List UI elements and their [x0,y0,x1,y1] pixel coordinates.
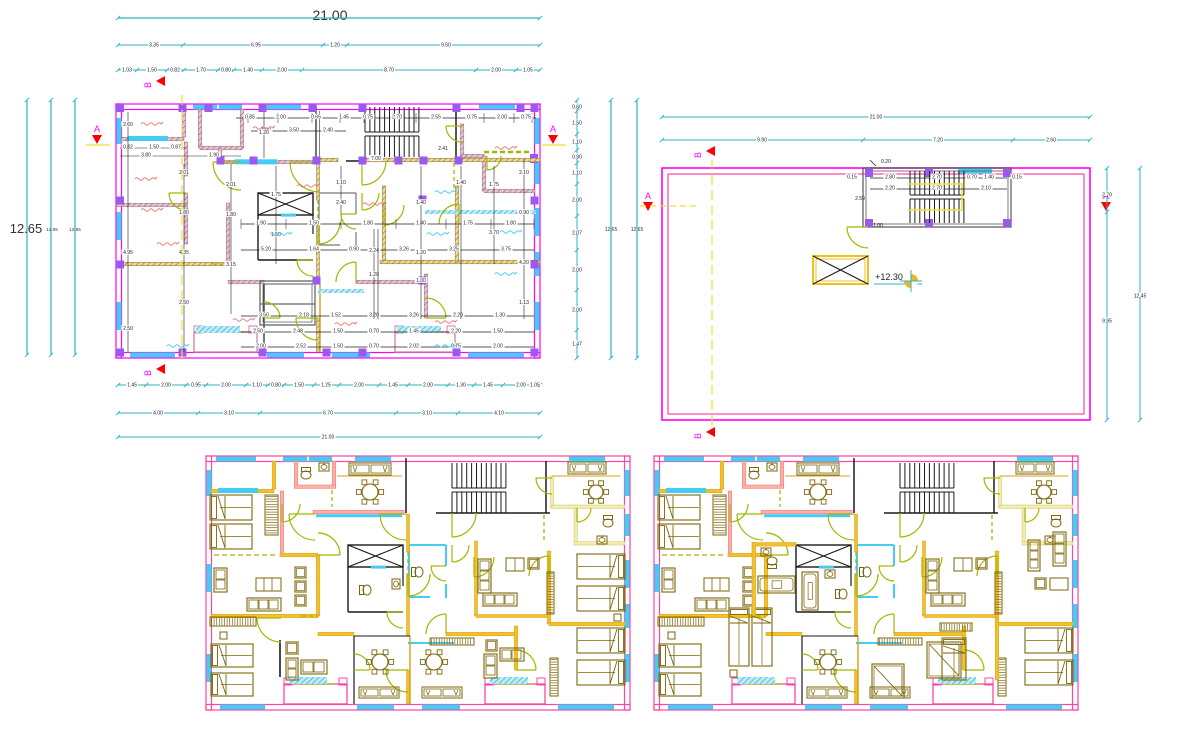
svg-text:4.10: 4.10 [494,411,504,417]
svg-text:1.40: 1.40 [984,174,994,180]
svg-text:1.40: 1.40 [456,180,466,186]
svg-text:2.20: 2.20 [453,312,463,318]
svg-text:0.60: 0.60 [572,105,582,111]
svg-text:1.10: 1.10 [252,383,262,389]
svg-text:0.70: 0.70 [967,174,977,180]
svg-text:6.95: 6.95 [251,43,261,49]
svg-text:1.64: 1.64 [309,246,319,252]
svg-text:1.80: 1.80 [506,220,516,226]
svg-text:2.07: 2.07 [572,231,582,237]
svg-text:2.70: 2.70 [932,185,942,191]
svg-text:1.80: 1.80 [179,210,189,216]
svg-text:2.60: 2.60 [123,122,133,128]
svg-text:3.10: 3.10 [422,411,432,417]
svg-text:0.15: 0.15 [1012,174,1022,180]
svg-text:1.00: 1.00 [416,278,426,284]
svg-text:B: B [143,370,153,376]
svg-text:1.50: 1.50 [294,383,304,389]
svg-text:1.05: 1.05 [523,68,533,74]
svg-text:2.41: 2.41 [438,146,448,152]
svg-text:2.40: 2.40 [336,200,346,206]
svg-text:3.15: 3.15 [226,262,236,268]
svg-text:2.70: 2.70 [392,114,402,120]
svg-text:1.13: 1.13 [519,300,529,306]
svg-text:4.00: 4.00 [153,411,163,417]
svg-text:0.75: 0.75 [467,114,477,120]
svg-text:1.40: 1.40 [416,200,426,206]
svg-text:0.70: 0.70 [369,343,379,349]
svg-text:A: A [550,124,556,134]
svg-text:2.00: 2.00 [161,383,171,389]
svg-text:2.40: 2.40 [323,127,333,133]
svg-text:1.47: 1.47 [572,342,582,348]
svg-text:8.70: 8.70 [384,68,394,74]
svg-text:A: A [94,124,100,134]
svg-text:2.10: 2.10 [981,185,991,191]
svg-text:3.70: 3.70 [489,230,499,236]
svg-text:1.75: 1.75 [271,192,281,198]
svg-text:1.30: 1.30 [456,383,466,389]
svg-text:2.80: 2.80 [885,174,895,180]
svg-text:2.50: 2.50 [123,326,133,332]
svg-text:2.60: 2.60 [1046,138,1056,144]
svg-text:2.20: 2.20 [885,185,895,191]
svg-text:1.20: 1.20 [330,43,340,49]
svg-text:2.01: 2.01 [226,182,236,188]
svg-text:2.52: 2.52 [296,343,306,349]
svg-text:2.00: 2.00 [497,114,507,120]
svg-text:12.65: 12.65 [46,227,58,232]
svg-text:12.65: 12.65 [10,221,43,236]
svg-text:3.10: 3.10 [224,411,234,417]
svg-text:1.50: 1.50 [147,68,157,74]
svg-text:0.15: 0.15 [847,174,857,180]
svg-text:1.20: 1.20 [416,250,426,256]
svg-text:1.80: 1.80 [226,212,236,218]
svg-text:2.00: 2.00 [493,343,503,349]
svg-text:12.65: 12.65 [631,227,644,233]
svg-text:2.00: 2.00 [256,343,266,349]
svg-text:B: B [693,433,703,439]
svg-text:0.75: 0.75 [521,114,531,120]
svg-text:3.35: 3.35 [149,43,159,49]
svg-text:0.75: 0.75 [363,114,373,120]
svg-text:2.00: 2.00 [572,308,582,314]
svg-text:1.52: 1.52 [331,312,341,318]
svg-text:0.90: 0.90 [519,210,529,216]
svg-text:0.65: 0.65 [311,114,321,120]
svg-text:1.75: 1.75 [489,182,499,188]
svg-text:2.10: 2.10 [519,170,529,176]
svg-text:2.00: 2.00 [221,383,231,389]
svg-text:2.50: 2.50 [253,328,263,334]
svg-text:1.70: 1.70 [196,68,206,74]
svg-text:0.85: 0.85 [245,114,255,120]
svg-text:2.00: 2.00 [277,68,287,74]
svg-text:21.00: 21.00 [322,435,335,441]
svg-text:1.90: 1.90 [256,220,266,226]
svg-text:2.50: 2.50 [855,196,865,202]
svg-text:1.45: 1.45 [127,383,137,389]
svg-text:1.45: 1.45 [339,114,349,120]
svg-text:2.00: 2.00 [491,68,501,74]
svg-text:2.24: 2.24 [369,248,379,254]
svg-text:2.02: 2.02 [409,343,419,349]
svg-text:1.10: 1.10 [572,171,582,177]
svg-text:1.50: 1.50 [149,144,159,150]
svg-text:9.50: 9.50 [441,43,451,49]
svg-text:B: B [143,82,153,88]
svg-text:1.50: 1.50 [309,220,319,226]
svg-text:4.35: 4.35 [179,250,189,256]
svg-text:0.80: 0.80 [271,383,281,389]
svg-text:2.01: 2.01 [179,170,189,176]
svg-text:2.00: 2.00 [423,383,433,389]
svg-text:9.90: 9.90 [757,138,767,144]
svg-text:2.00: 2.00 [354,383,364,389]
svg-text:2.00: 2.00 [276,114,286,120]
svg-text:5.20: 5.20 [261,246,271,252]
svg-text:7.20: 7.20 [933,138,943,144]
svg-text:2.00: 2.00 [572,268,582,274]
svg-text:1.50: 1.50 [572,121,582,127]
svg-text:1.20: 1.20 [259,130,269,136]
svg-text:2.50: 2.50 [179,300,189,306]
svg-text:2.00: 2.00 [516,383,526,389]
svg-text:1.05: 1.05 [530,383,540,389]
svg-text:0.82: 0.82 [170,68,180,74]
svg-text:1.50: 1.50 [493,328,503,334]
svg-text:4.20: 4.20 [519,260,529,266]
svg-text:1.50: 1.50 [333,343,343,349]
svg-text:1.30: 1.30 [495,312,505,318]
svg-text:1.00: 1.00 [873,223,883,229]
svg-text:0.70: 0.70 [369,328,379,334]
svg-text:2.48: 2.48 [293,328,303,334]
svg-text:2.20: 2.20 [451,328,461,334]
svg-text:B: B [693,152,703,158]
svg-text:2.00: 2.00 [572,198,582,204]
svg-text:1.45: 1.45 [388,383,398,389]
svg-text:1.20: 1.20 [369,272,379,278]
svg-text:6.70: 6.70 [323,411,333,417]
svg-text:12.65: 12.65 [69,227,81,232]
svg-text:0.90: 0.90 [572,155,582,161]
svg-text:7.00: 7.00 [371,156,381,162]
svg-text:3.50: 3.50 [289,127,299,133]
svg-text:12.45: 12.45 [1134,294,1147,300]
svg-text:3.26: 3.26 [409,312,419,318]
svg-text:0.80: 0.80 [221,68,231,74]
svg-text:1.03: 1.03 [122,68,132,74]
svg-text:3.26: 3.26 [399,246,409,252]
svg-text:1.25: 1.25 [321,383,331,389]
svg-text:2.18: 2.18 [299,312,309,318]
svg-text:3.80: 3.80 [141,152,151,158]
svg-text:0.20: 0.20 [881,159,891,165]
svg-text:1.40: 1.40 [243,68,253,74]
svg-text:3.25: 3.25 [449,246,459,252]
svg-text:0.95: 0.95 [191,383,201,389]
svg-text:12.65: 12.65 [605,227,618,233]
svg-text:1.45: 1.45 [409,328,419,334]
svg-text:1.50: 1.50 [333,328,343,334]
svg-text:+12.30: +12.30 [875,272,903,282]
svg-text:21.00: 21.00 [312,7,347,23]
svg-text:0.87: 0.87 [171,144,181,150]
svg-text:A: A [645,191,651,201]
svg-text:1.10: 1.10 [336,180,346,186]
svg-text:2.70: 2.70 [1102,193,1112,199]
svg-text:3.50: 3.50 [259,312,269,318]
svg-text:1.45: 1.45 [483,383,493,389]
svg-text:0.90: 0.90 [349,246,359,252]
svg-text:1.90: 1.90 [209,152,219,158]
svg-text:1.80: 1.80 [363,220,373,226]
svg-text:1.10: 1.10 [572,140,582,146]
svg-text:1.75: 1.75 [463,220,473,226]
svg-text:9.95: 9.95 [1102,319,1112,325]
svg-text:3.75: 3.75 [501,246,511,252]
svg-text:4.95: 4.95 [123,250,133,256]
svg-text:21.00: 21.00 [870,115,883,121]
svg-text:2.55: 2.55 [431,114,441,120]
svg-text:2.70: 2.70 [932,174,942,180]
